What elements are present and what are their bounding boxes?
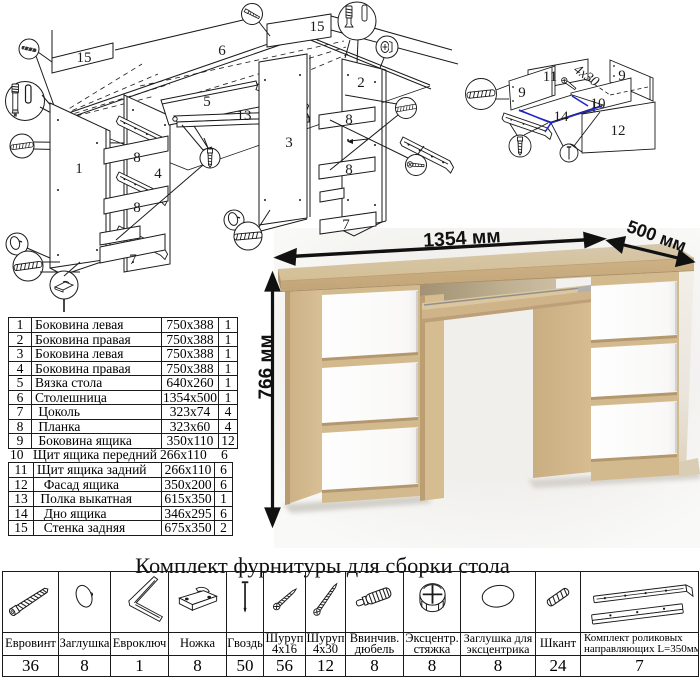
- svg-text:9: 9: [618, 68, 626, 84]
- svg-text:10: 10: [591, 96, 606, 112]
- svg-text:9: 9: [518, 85, 526, 101]
- svg-text:14: 14: [554, 109, 570, 125]
- svg-text:12: 12: [611, 123, 626, 139]
- svg-text:11: 11: [543, 69, 557, 85]
